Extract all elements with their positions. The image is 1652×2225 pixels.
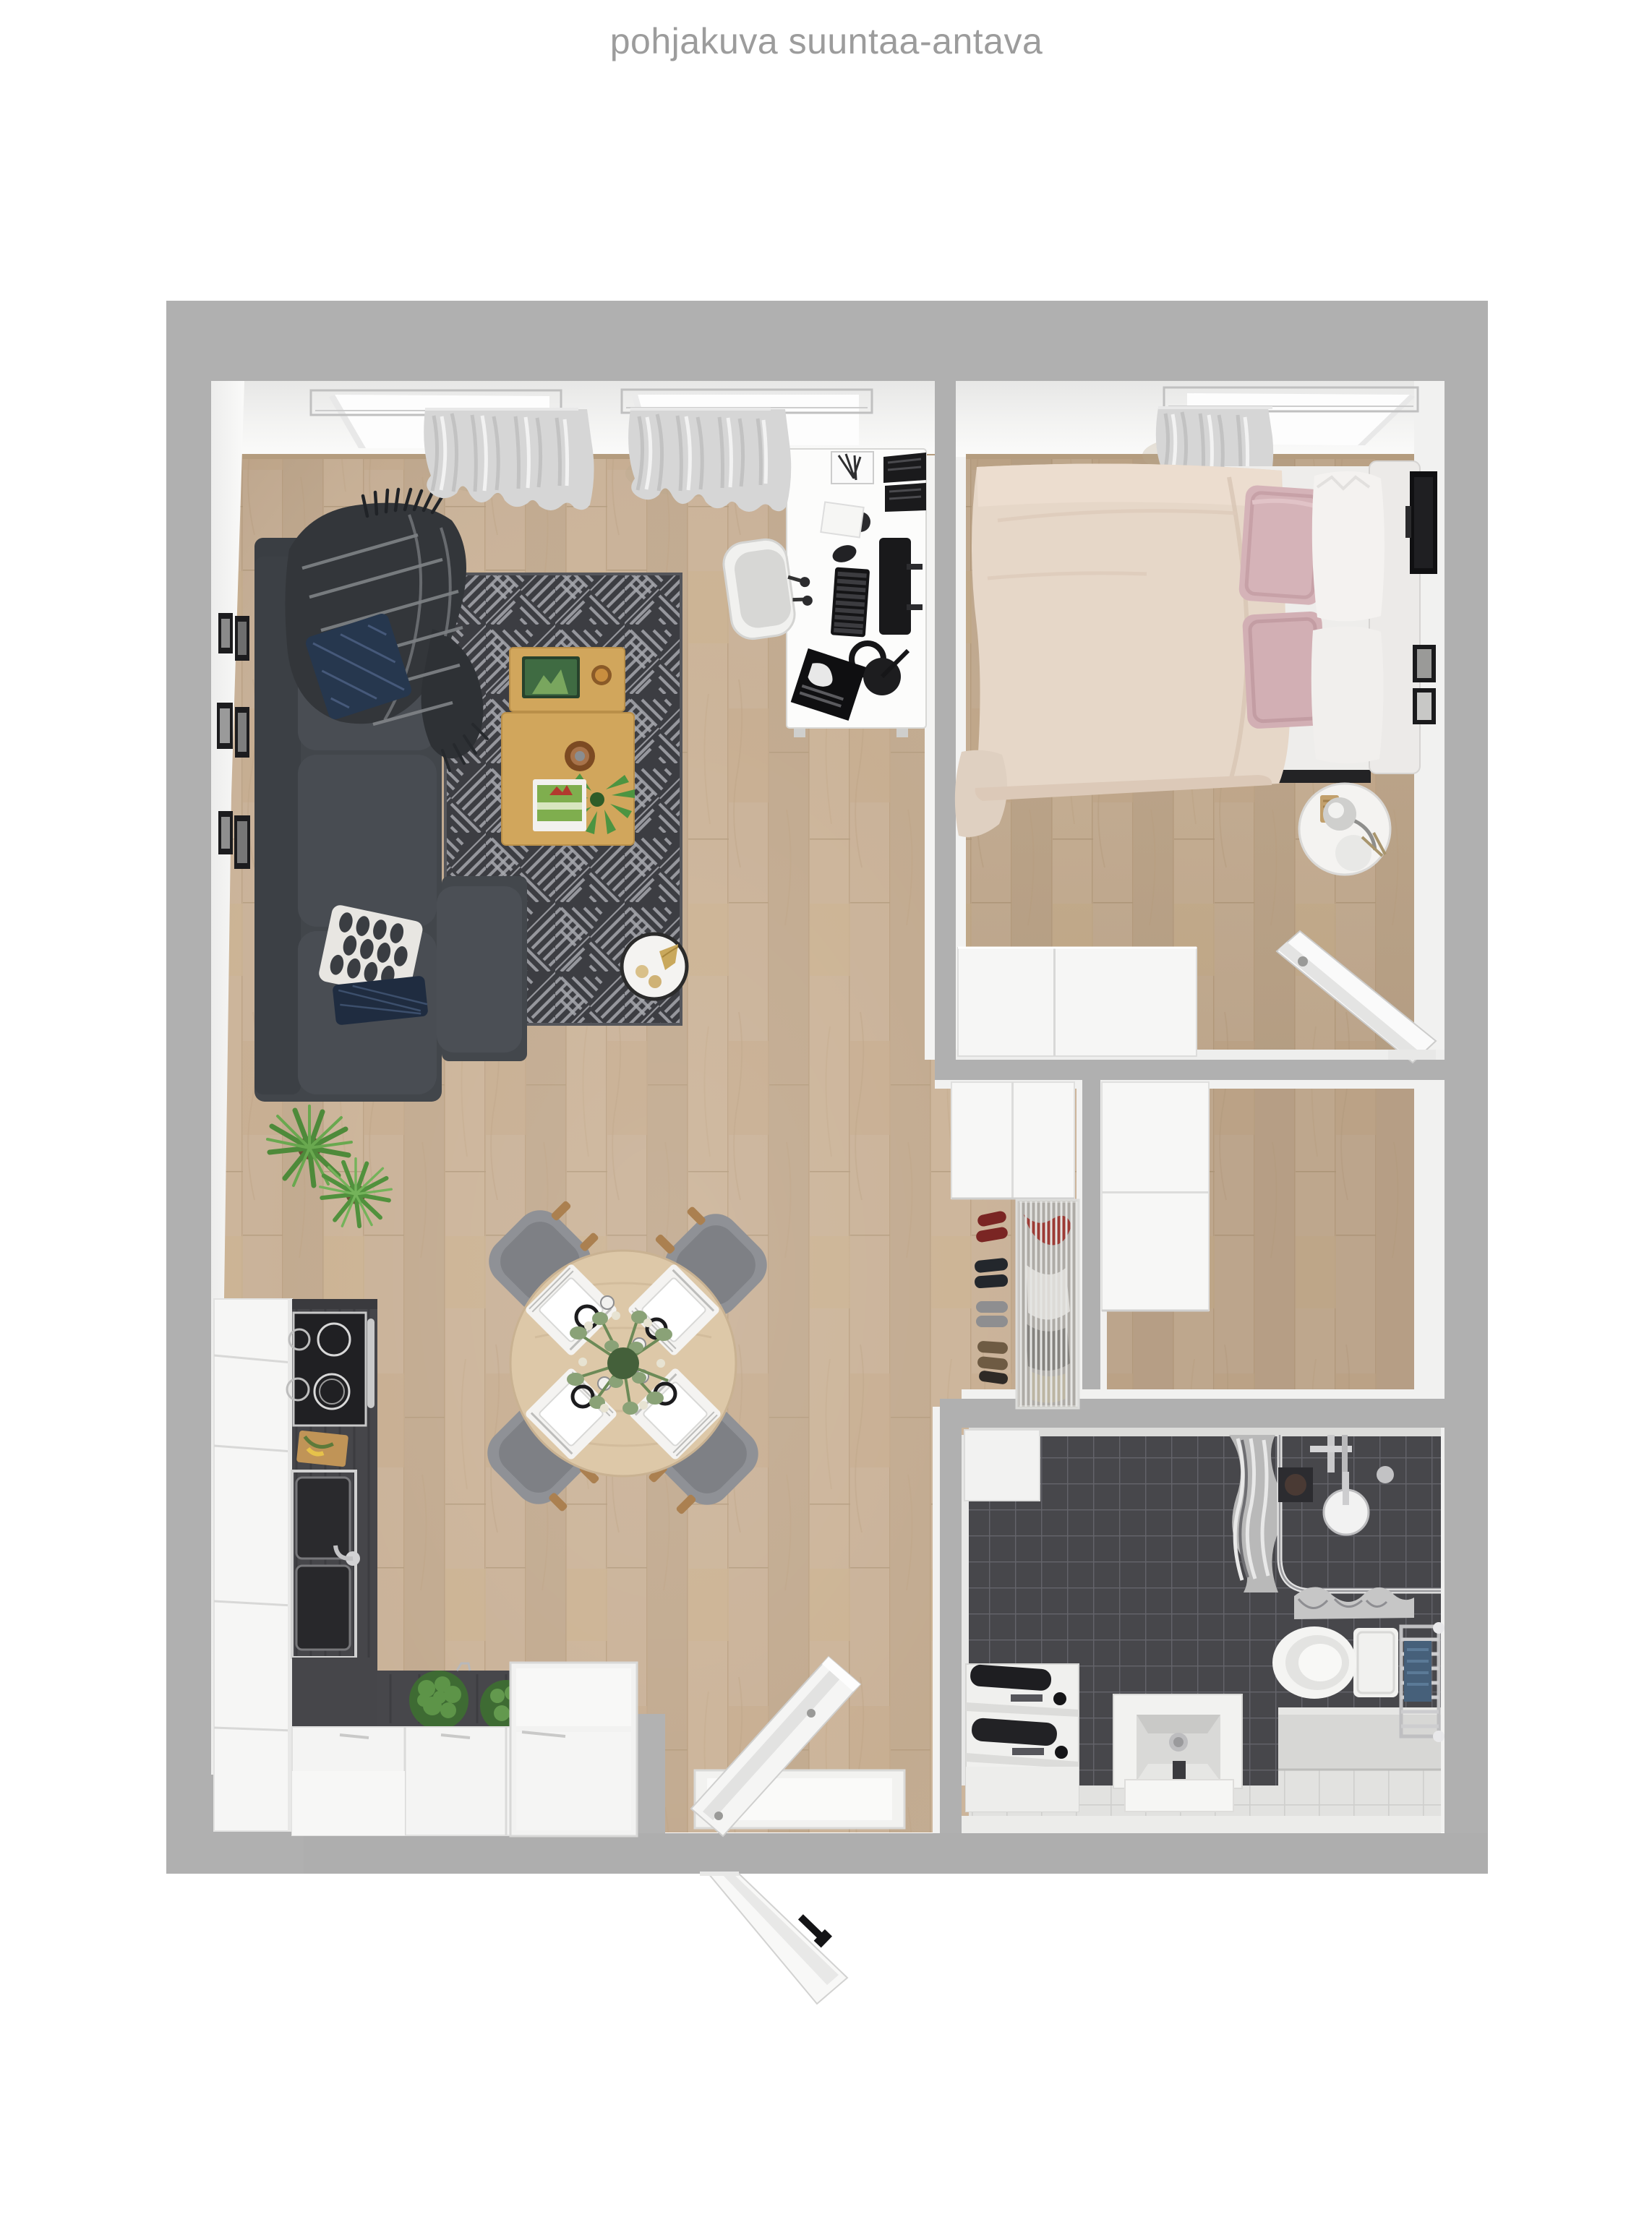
svg-text:pohjakuva suuntaa-antava: pohjakuva suuntaa-antava [610,21,1043,61]
